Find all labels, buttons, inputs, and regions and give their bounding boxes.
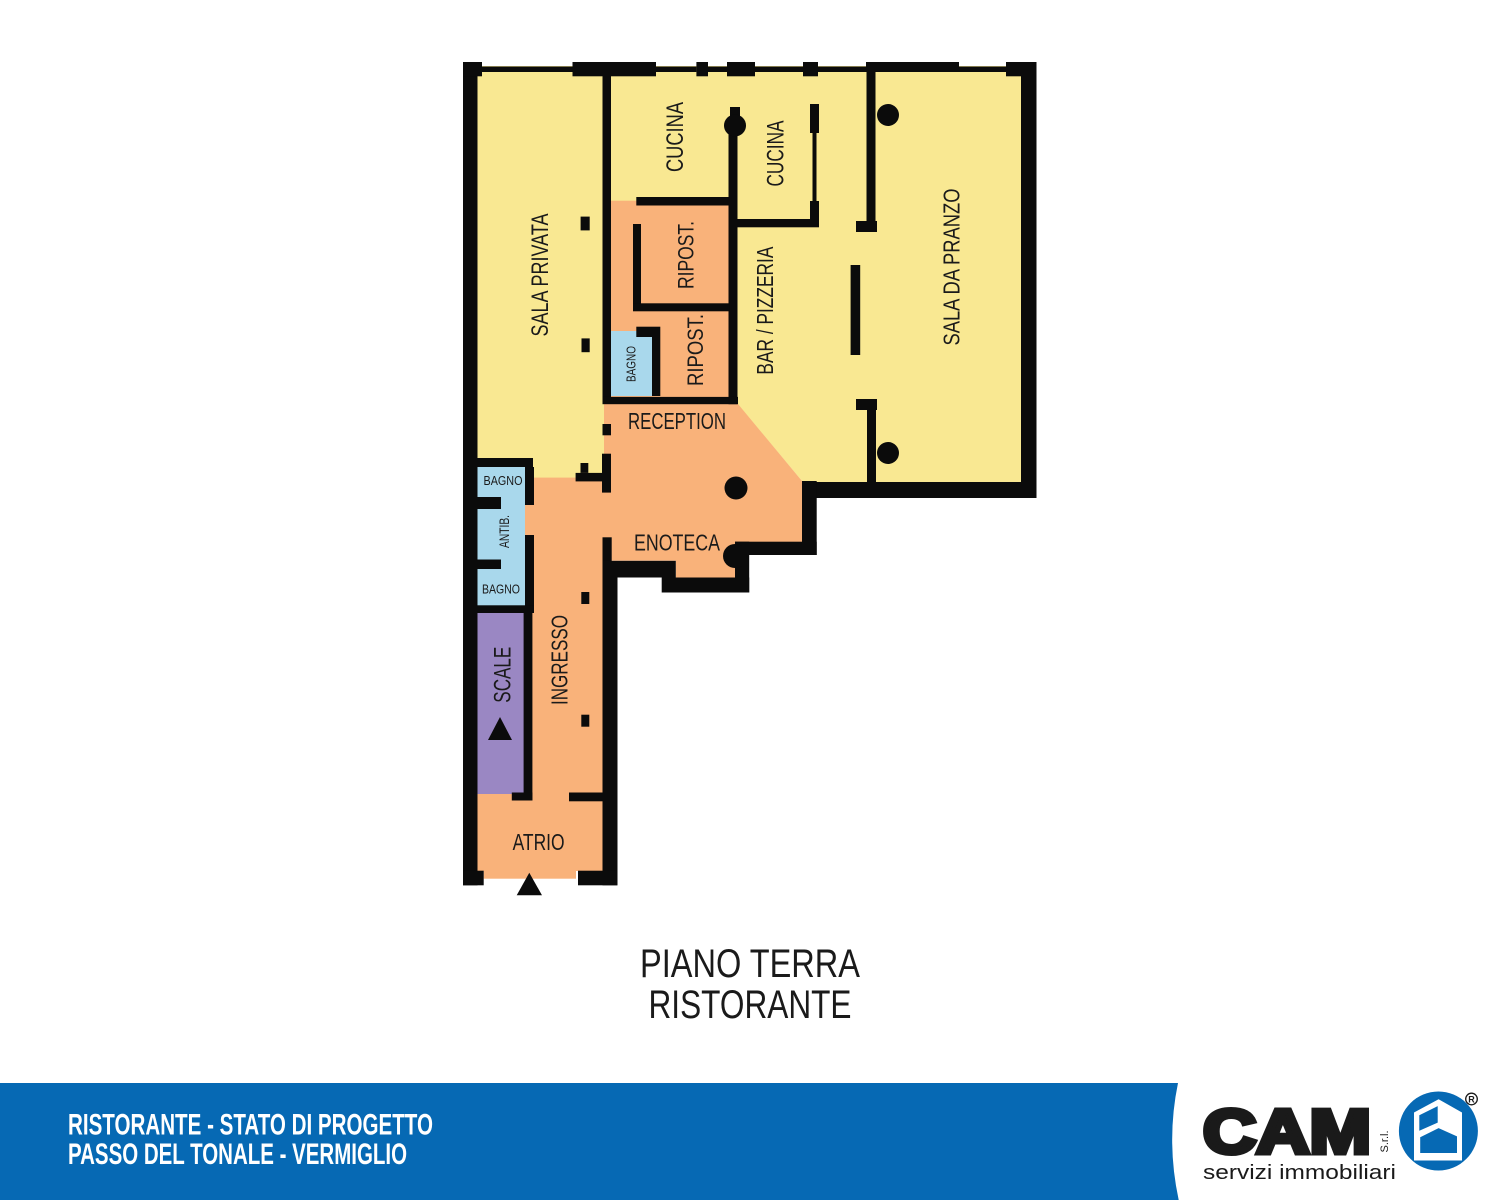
svg-text:PIANO TERRA: PIANO TERRA [640, 942, 860, 986]
svg-text:BAR / PIZZERIA: BAR / PIZZERIA [752, 246, 778, 374]
svg-text:PASSO DEL TONALE - VERMIGLIO: PASSO DEL TONALE - VERMIGLIO [68, 1138, 407, 1171]
svg-text:ANTIB.: ANTIB. [496, 515, 512, 548]
svg-text:SALA PRIVATA: SALA PRIVATA [527, 214, 554, 337]
svg-text:RIPOST.: RIPOST. [683, 314, 708, 386]
svg-text:ATRIO: ATRIO [513, 829, 565, 855]
svg-text:RISTORANTE - STATO DI PROGETTO: RISTORANTE - STATO DI PROGETTO [68, 1109, 433, 1142]
svg-text:ENOTECA: ENOTECA [634, 530, 721, 556]
svg-text:CUCINA: CUCINA [662, 102, 689, 172]
svg-text:RIPOST.: RIPOST. [673, 221, 698, 289]
svg-text:RECEPTION: RECEPTION [628, 408, 726, 434]
svg-text:INGRESSO: INGRESSO [547, 615, 573, 705]
svg-text:R: R [1468, 1094, 1475, 1104]
svg-text:SALA DA PRANZO: SALA DA PRANZO [938, 189, 964, 346]
svg-text:BAGNO: BAGNO [484, 473, 523, 488]
svg-text:S.r.l.: S.r.l. [1379, 1130, 1391, 1152]
svg-text:CUCINA: CUCINA [762, 121, 789, 187]
svg-text:RISTORANTE: RISTORANTE [649, 983, 852, 1027]
svg-text:SCALE: SCALE [490, 647, 517, 703]
svg-text:CAM: CAM [1203, 1098, 1371, 1167]
svg-text:BAGNO: BAGNO [624, 346, 639, 382]
svg-text:BAGNO: BAGNO [482, 582, 520, 597]
svg-text:servizi immobiliari: servizi immobiliari [1203, 1162, 1396, 1184]
